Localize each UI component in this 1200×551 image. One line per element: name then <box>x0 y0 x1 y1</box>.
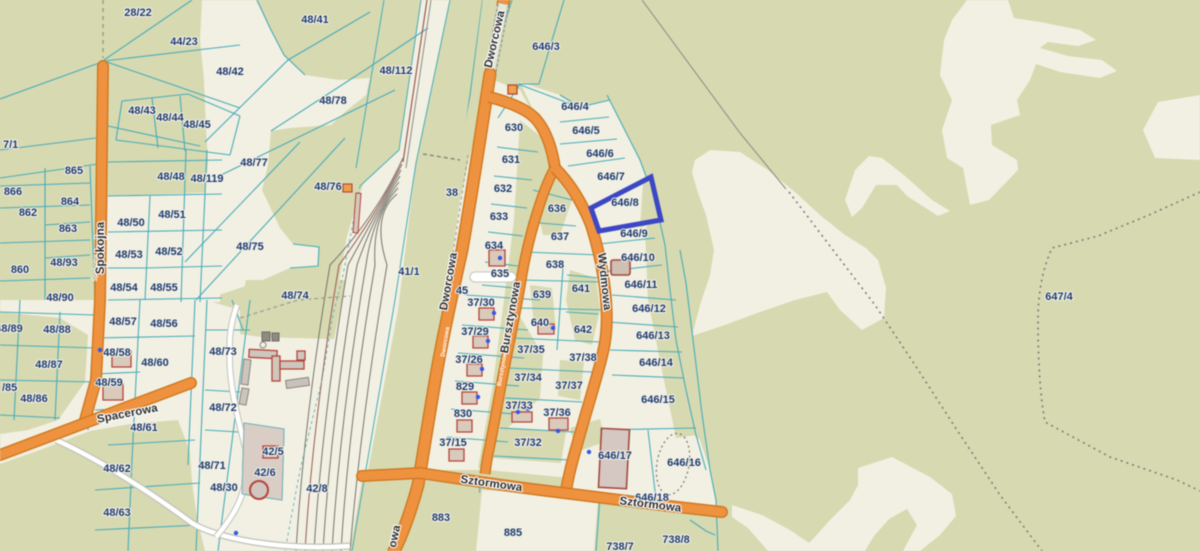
svg-text:37/26: 37/26 <box>455 354 483 366</box>
svg-text:632: 632 <box>494 183 512 195</box>
svg-text:7/1: 7/1 <box>3 139 18 151</box>
svg-text:48/75: 48/75 <box>236 241 264 253</box>
svg-text:48/30: 48/30 <box>210 482 238 494</box>
svg-text:37/33: 37/33 <box>505 400 533 412</box>
svg-text:48/71: 48/71 <box>198 460 226 472</box>
svg-text:642: 642 <box>574 324 592 336</box>
svg-text:646/5: 646/5 <box>572 125 600 137</box>
svg-text:48/60: 48/60 <box>141 357 169 369</box>
svg-text:637: 637 <box>551 231 569 243</box>
svg-text:48/42: 48/42 <box>216 66 244 78</box>
svg-text:Spokojna: Spokojna <box>95 221 107 274</box>
svg-text:48/45: 48/45 <box>183 119 211 131</box>
svg-text:646/15: 646/15 <box>641 394 675 406</box>
svg-text:48/87: 48/87 <box>35 359 63 371</box>
svg-text:48/77: 48/77 <box>240 157 268 169</box>
svg-text:48/54: 48/54 <box>110 282 138 294</box>
svg-text:45: 45 <box>456 285 468 297</box>
svg-text:646/12: 646/12 <box>632 303 666 315</box>
svg-text:641: 641 <box>572 283 590 295</box>
svg-text:640: 640 <box>531 317 549 329</box>
svg-text:48/53: 48/53 <box>115 249 143 261</box>
svg-text:646/13: 646/13 <box>636 330 670 342</box>
svg-text:48/74: 48/74 <box>281 290 309 302</box>
svg-text:48/63: 48/63 <box>103 507 131 519</box>
svg-text:885: 885 <box>504 527 522 539</box>
svg-text:41/1: 41/1 <box>398 266 419 278</box>
svg-text:48/86: 48/86 <box>20 393 48 405</box>
svg-text:646/8: 646/8 <box>611 197 639 209</box>
svg-text:864: 864 <box>61 196 80 208</box>
svg-text:639: 639 <box>533 289 551 301</box>
svg-text:48/44: 48/44 <box>156 112 184 124</box>
svg-text:/85: /85 <box>2 382 17 394</box>
svg-text:37/30: 37/30 <box>467 297 495 309</box>
svg-text:630: 630 <box>505 122 523 134</box>
svg-text:28/22: 28/22 <box>124 7 152 19</box>
svg-text:738/7: 738/7 <box>606 541 634 551</box>
svg-text:48/72: 48/72 <box>209 402 237 414</box>
svg-text:37/37: 37/37 <box>555 380 583 392</box>
svg-text:738/8: 738/8 <box>662 534 690 546</box>
svg-text:48/88: 48/88 <box>43 324 71 336</box>
svg-text:48/51: 48/51 <box>158 209 186 221</box>
svg-text:48/93: 48/93 <box>50 257 78 269</box>
svg-text:860: 860 <box>11 264 29 276</box>
svg-text:646/7: 646/7 <box>597 171 625 183</box>
svg-text:48/119: 48/119 <box>190 173 223 185</box>
svg-text:42/6: 42/6 <box>254 467 275 479</box>
svg-text:865: 865 <box>65 165 83 177</box>
svg-text:37/32: 37/32 <box>514 437 542 449</box>
svg-text:646/6: 646/6 <box>586 148 614 160</box>
svg-text:635: 635 <box>491 268 509 280</box>
svg-text:48/56: 48/56 <box>150 318 178 330</box>
svg-text:48/43: 48/43 <box>128 105 156 117</box>
svg-text:634: 634 <box>485 240 504 252</box>
svg-text:37/15: 37/15 <box>439 437 467 449</box>
svg-text:829: 829 <box>456 381 474 393</box>
svg-text:48/52: 48/52 <box>155 246 183 258</box>
svg-text:863: 863 <box>59 223 77 235</box>
svg-text:638: 638 <box>546 259 564 271</box>
svg-text:44/23: 44/23 <box>170 36 198 48</box>
svg-text:646/16: 646/16 <box>667 457 701 469</box>
svg-text:866: 866 <box>4 186 22 198</box>
svg-text:631: 631 <box>502 154 520 166</box>
svg-text:37/38: 37/38 <box>569 352 597 364</box>
svg-text:636: 636 <box>548 203 566 215</box>
svg-text:38: 38 <box>446 187 458 199</box>
svg-text:862: 862 <box>19 207 37 219</box>
svg-text:647/4: 647/4 <box>1045 291 1073 303</box>
svg-text:48/58: 48/58 <box>103 347 131 359</box>
svg-text:883: 883 <box>432 512 450 524</box>
svg-text:48/62: 48/62 <box>103 463 131 475</box>
svg-text:646/17: 646/17 <box>598 450 632 462</box>
svg-text:48/76: 48/76 <box>314 181 342 193</box>
svg-text:48/41: 48/41 <box>301 14 329 26</box>
svg-text:646/14: 646/14 <box>639 357 674 369</box>
svg-text:48/59: 48/59 <box>95 377 123 389</box>
svg-text:48/112: 48/112 <box>379 65 412 77</box>
svg-text:48/57: 48/57 <box>109 316 137 328</box>
svg-text:646/3: 646/3 <box>532 41 560 53</box>
svg-text:633: 633 <box>490 211 508 223</box>
svg-text:646/4: 646/4 <box>561 101 589 113</box>
svg-text:646/10: 646/10 <box>621 252 655 264</box>
svg-text:48/48: 48/48 <box>157 171 185 183</box>
svg-text:37/34: 37/34 <box>514 372 542 384</box>
svg-text:48/55: 48/55 <box>150 282 178 294</box>
svg-text:646/11: 646/11 <box>624 279 657 291</box>
svg-text:646/9: 646/9 <box>620 228 648 240</box>
svg-text:48/73: 48/73 <box>209 346 237 358</box>
svg-text:48/90: 48/90 <box>46 292 74 304</box>
svg-text:42/8: 42/8 <box>306 483 327 495</box>
svg-text:48/61: 48/61 <box>130 422 158 434</box>
svg-text:37/36: 37/36 <box>543 407 571 419</box>
svg-text:48/50: 48/50 <box>117 217 145 229</box>
svg-text:37/29: 37/29 <box>461 326 489 338</box>
svg-text:37/35: 37/35 <box>517 344 545 356</box>
svg-text:830: 830 <box>454 408 472 420</box>
svg-text:48/78: 48/78 <box>319 95 347 107</box>
svg-text:42/5: 42/5 <box>262 446 283 458</box>
svg-text:48/89: 48/89 <box>0 323 23 335</box>
